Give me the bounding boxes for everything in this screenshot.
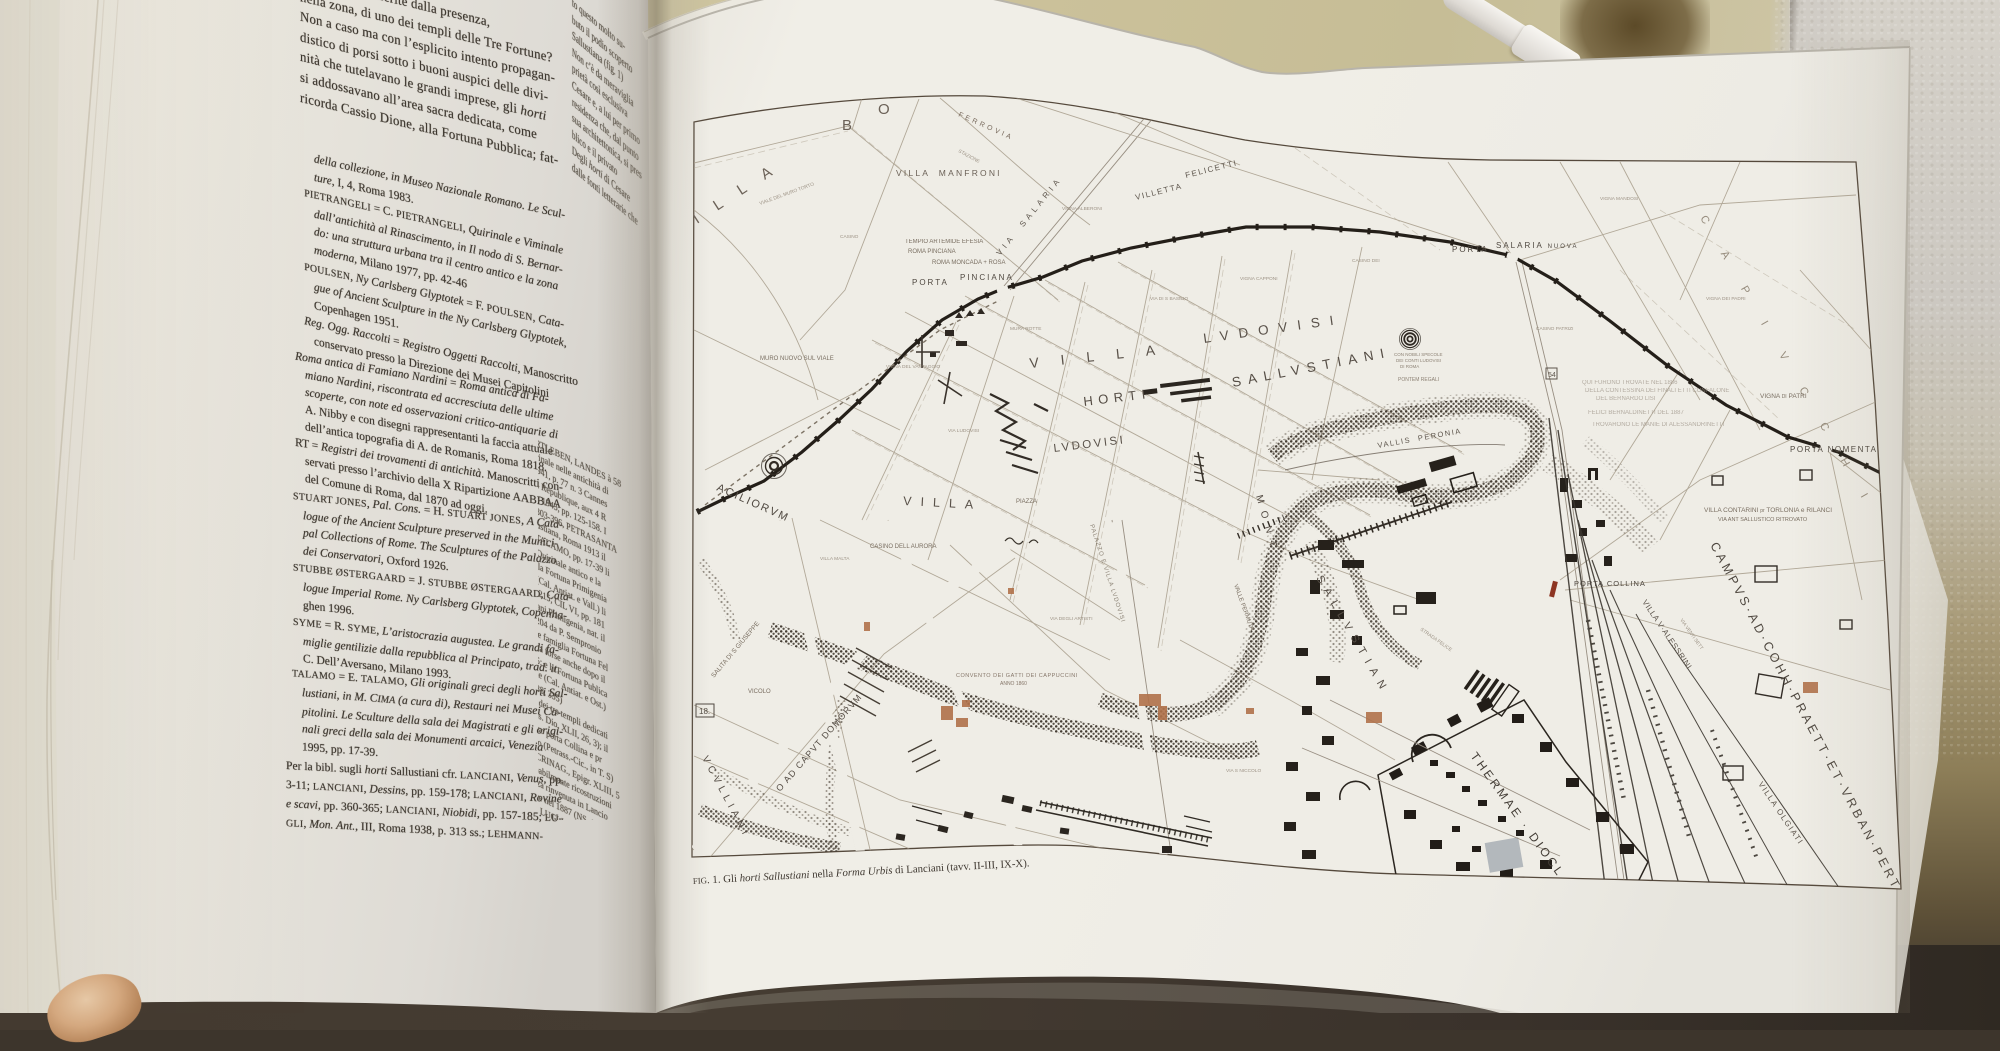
svg-text:VIGNA MANDOSI: VIGNA MANDOSI [1600,196,1638,202]
svg-text:PORTA: PORTA [912,278,949,287]
svg-text:MURA ROTTE: MURA ROTTE [1010,326,1041,332]
svg-text:CASINO DELL AURORA: CASINO DELL AURORA [870,544,936,550]
svg-text:DI ROMA: DI ROMA [1400,364,1419,369]
svg-text:DELLA CONTESSINA DEI FINALI ET: DELLA CONTESSINA DEI FINALI ETTI CONFALO… [1585,388,1729,394]
svg-text:ROMA MONCADA + ROSA: ROMA MONCADA + ROSA [932,260,1006,266]
svg-text:MURO NUOVO SUL VIALE: MURO NUOVO SUL VIALE [760,356,834,362]
svg-text:54: 54 [1548,372,1556,379]
svg-text:VIGNA DEI PADRI: VIGNA DEI PADRI [1706,296,1746,302]
svg-text:CASINO DEI: CASINO DEI [1352,258,1380,264]
svg-text:DEI CONTI LUDOVISI: DEI CONTI LUDOVISI [1396,358,1441,363]
svg-text:TEMPIO ARTEMIDE EFESIA: TEMPIO ARTEMIDE EFESIA [905,239,983,245]
svg-text:CON NOBILI SPECOLE: CON NOBILI SPECOLE [1394,352,1443,357]
svg-text:CASINO: CASINO [840,234,859,240]
svg-text:VIA DI S BASILIO: VIA DI S BASILIO [1150,296,1188,302]
svg-text:PINCIANA: PINCIANA [960,273,1014,282]
svg-text:VIGNA ALBERONI: VIGNA ALBERONI [1062,206,1102,212]
svg-text:QUI FURONO TROVATE NEL 1886: QUI FURONO TROVATE NEL 1886 [1582,380,1678,386]
svg-text:PONTEM REGALI: PONTEM REGALI [1398,377,1439,383]
svg-text:FELICI BERNALDINETTI DEL 1887: FELICI BERNALDINETTI DEL 1887 [1588,410,1684,416]
svg-text:VIA S NICCOLO: VIA S NICCOLO [1226,768,1261,774]
svg-text:VILLA MALTA: VILLA MALTA [820,556,850,562]
svg-text:PORTA: PORTA [1452,245,1489,254]
svg-text:VIGNA CAPPONI: VIGNA CAPPONI [1240,276,1278,282]
svg-text:PORTA COLLINA: PORTA COLLINA [1574,579,1646,588]
svg-text:PIAZZA: PIAZZA [1016,499,1037,505]
svg-text:TROVARONO LE MANIE DI ALESSAND: TROVARONO LE MANIE DI ALESSANDRINETTI [1592,422,1725,428]
svg-text:VICOLO: VICOLO [748,689,771,695]
svg-text:VIA DEGLI ARTISTI: VIA DEGLI ARTISTI [1050,616,1093,622]
svg-text:O: O [878,101,890,118]
svg-text:ANNO 1860: ANNO 1860 [1000,681,1027,687]
svg-text:CONVENTO DEI GATTI DEI CAPPUCC: CONVENTO DEI GATTI DEI CAPPUCCINI [956,673,1078,679]
svg-text:B: B [842,117,852,134]
svg-text:VILLA MANFRONI: VILLA MANFRONI [896,168,1002,178]
svg-text:CASINO PATRIZI: CASINO PATRIZI [1536,326,1573,332]
svg-text:VIA LUDOVISI: VIA LUDOVISI [948,428,979,434]
svg-text:DEL BERNARDO LISI: DEL BERNARDO LISI [1596,396,1656,402]
svg-text:ROMA PINCIANA: ROMA PINCIANA [908,249,956,255]
svg-text:VIGNA DEL VANTAGGIO: VIGNA DEL VANTAGGIO [886,364,941,370]
